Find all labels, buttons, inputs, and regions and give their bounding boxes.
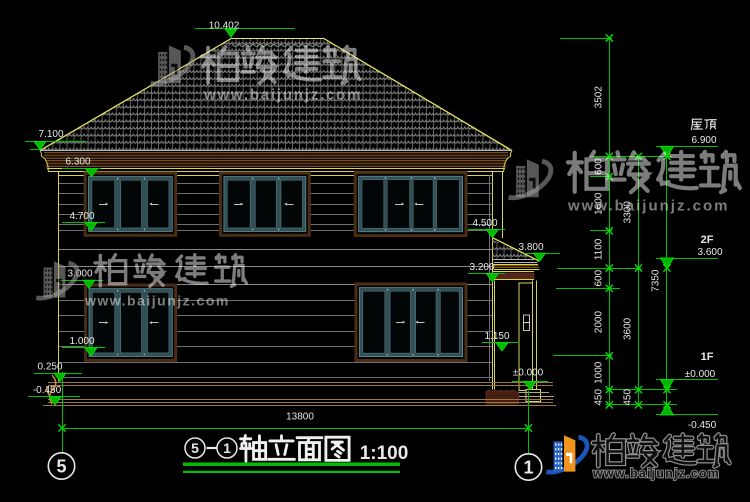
svg-text:-0.450: -0.450: [33, 385, 62, 396]
svg-text:450: 450: [623, 389, 634, 406]
svg-text:2000: 2000: [594, 311, 605, 334]
svg-text:6.900: 6.900: [691, 135, 716, 146]
svg-text:www.baijunjz.com: www.baijunjz.com: [203, 87, 362, 104]
svg-text:3.600: 3.600: [697, 247, 722, 258]
svg-text:1:100: 1:100: [360, 443, 409, 464]
svg-text:13800: 13800: [286, 412, 314, 423]
svg-text:www.baijunjz.com: www.baijunjz.com: [592, 467, 720, 481]
svg-text:3.000: 3.000: [67, 269, 92, 280]
svg-text:±0.000: ±0.000: [685, 369, 716, 380]
svg-text:-0.450: -0.450: [688, 420, 717, 431]
svg-text:1: 1: [223, 440, 231, 456]
svg-text:5: 5: [191, 440, 199, 456]
svg-text:6.300: 6.300: [65, 157, 90, 168]
svg-text:www.baijunjz.com: www.baijunjz.com: [84, 293, 230, 309]
svg-text:600: 600: [594, 269, 605, 286]
svg-text:1F: 1F: [701, 351, 714, 363]
svg-text:www.baijunjz.com: www.baijunjz.com: [567, 198, 729, 215]
svg-text:1100: 1100: [594, 238, 605, 260]
svg-text:450: 450: [594, 389, 605, 406]
svg-text:4.700: 4.700: [69, 211, 94, 222]
svg-text:1000: 1000: [594, 361, 605, 384]
svg-text:3600: 3600: [623, 317, 634, 340]
svg-text:3.800: 3.800: [518, 242, 543, 253]
svg-text:1.000: 1.000: [69, 336, 94, 347]
svg-text:3.200: 3.200: [469, 262, 494, 273]
svg-text:±0.000: ±0.000: [513, 368, 544, 379]
svg-text:5: 5: [56, 457, 66, 477]
svg-text:10.402: 10.402: [209, 21, 240, 32]
svg-text:0.250: 0.250: [37, 362, 62, 373]
svg-text:1.150: 1.150: [484, 331, 509, 342]
svg-text:7350: 7350: [651, 269, 662, 292]
svg-text:7.100: 7.100: [38, 129, 63, 140]
svg-text:4.500: 4.500: [472, 218, 497, 229]
svg-text:2F: 2F: [701, 234, 714, 246]
svg-text:3502: 3502: [594, 86, 605, 109]
svg-text:1: 1: [523, 458, 533, 478]
